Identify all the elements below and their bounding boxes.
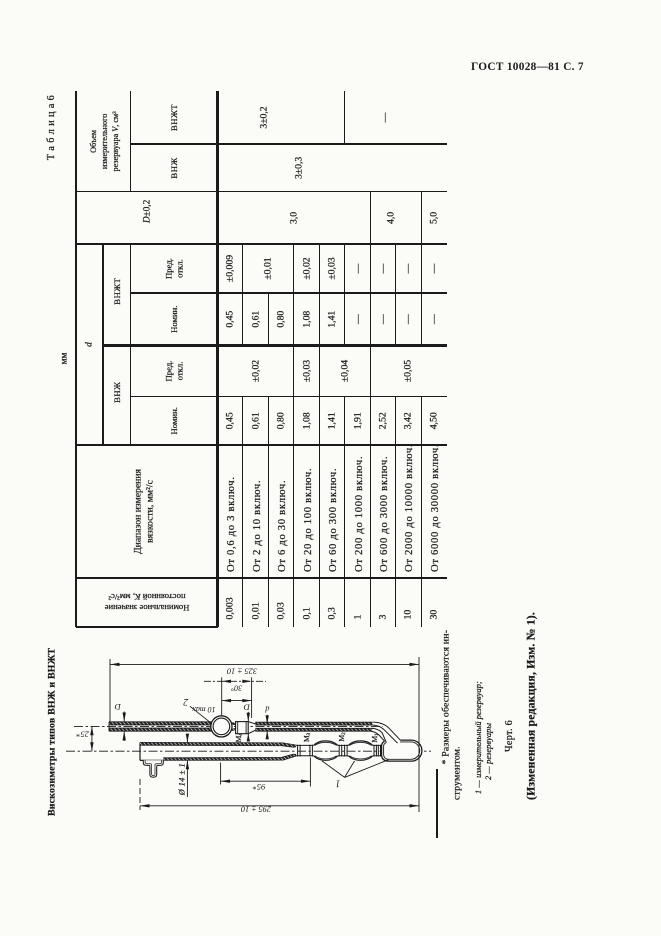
svg-text:1: 1 — [335, 778, 340, 789]
svg-text:25*: 25* — [75, 730, 89, 740]
svg-text:2: 2 — [183, 696, 188, 707]
svg-text:D: D — [243, 703, 251, 713]
svg-text:D: D — [114, 702, 122, 712]
svg-text:30°: 30° — [230, 684, 243, 693]
svg-text:325 ± 10: 325 ± 10 — [226, 667, 258, 677]
svg-text:295 ± 10: 295 ± 10 — [240, 804, 271, 814]
svg-text:10 max: 10 max — [192, 705, 216, 714]
svg-text:95*: 95* — [252, 782, 266, 792]
svg-text:d: d — [265, 705, 270, 715]
